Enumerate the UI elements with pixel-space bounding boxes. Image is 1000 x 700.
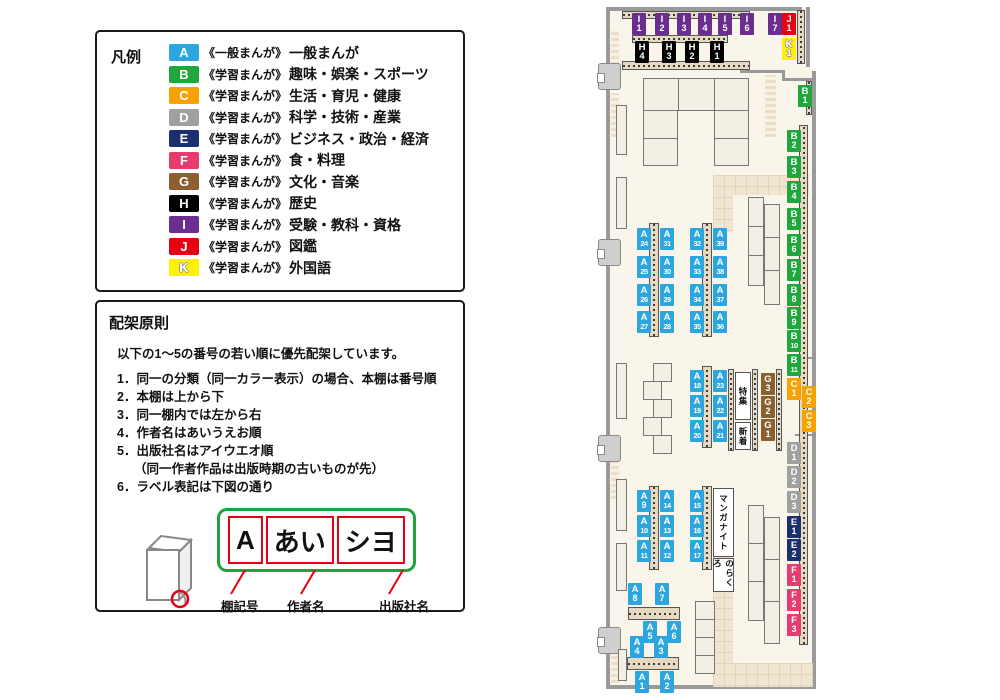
wall-shelf — [616, 105, 627, 155]
shelf-label-B7: B7 — [787, 259, 801, 281]
shelf-block — [764, 517, 780, 560]
shelf-label-A39: A39 — [713, 228, 727, 250]
shelf-label-A28: A28 — [660, 311, 674, 333]
legend-series: 《学習まんが》 — [203, 195, 287, 212]
category-chip-I: I — [169, 216, 199, 233]
category-chip-F: F — [169, 152, 199, 169]
door-icon — [598, 63, 621, 90]
legend-series: 《一般まんが》 — [203, 44, 287, 61]
legend-row-J: J《学習まんが》図鑑 — [169, 236, 451, 258]
shelf-label-B9: B9 — [787, 307, 801, 329]
rules-item-4: 4．作者名はあいうえお順 — [117, 424, 451, 442]
shelf-label-A27: A27 — [637, 311, 651, 333]
shelf-label-B5: B5 — [787, 208, 801, 230]
shelf-strip — [627, 657, 679, 670]
diagram-caption-3: 出版社名 — [379, 596, 429, 615]
rules-box: 配架原則 以下の1〜5の番号の若い順に優先配架しています。 1．同一の分類（同一… — [95, 300, 465, 612]
shelf-label-J1: J1 — [782, 13, 796, 35]
shelf-label-A17: A17 — [690, 540, 704, 562]
shelf-block — [748, 226, 764, 256]
shelf-label-A35: A35 — [690, 311, 704, 333]
table — [695, 637, 715, 656]
legend-series: 《学習まんが》 — [203, 238, 287, 255]
legend-name: 一般まんが — [289, 43, 359, 63]
shelf-label-A29: A29 — [660, 284, 674, 306]
shelf-block — [764, 601, 780, 644]
shelf-strip — [752, 369, 758, 451]
shelf-block — [748, 505, 764, 544]
shelf-label-B4: B4 — [787, 181, 801, 203]
shelf-block — [643, 110, 678, 139]
category-chip-D: D — [169, 109, 199, 126]
legend-name: 食・料理 — [289, 150, 345, 170]
legend-name: 外国語 — [289, 258, 331, 278]
shelf-label-A33: A33 — [690, 256, 704, 278]
shelf-strip — [797, 10, 805, 64]
book-icon — [139, 530, 201, 614]
shelf-label-B11: B11 — [787, 354, 801, 376]
legend-series: 《学習まんが》 — [203, 66, 287, 83]
rules-item-2: 2．本棚は上から下 — [117, 388, 451, 406]
shelf-label-E2: E2 — [787, 539, 801, 561]
shelf-block — [714, 78, 749, 111]
diagram-caption-2: 作者名 — [287, 596, 325, 615]
table — [695, 655, 715, 674]
shelf-label-F1: F1 — [787, 564, 801, 586]
map-text-マンガナイト: マンガナイト — [713, 488, 734, 557]
shelf-label-A8: A8 — [628, 583, 642, 605]
legend-series: 《学習まんが》 — [203, 109, 287, 126]
shelf-block — [678, 78, 715, 111]
legend-row-A: A《一般まんが》一般まんが — [169, 42, 451, 64]
shelf-label-A30: A30 — [660, 256, 674, 278]
wall-seg — [740, 70, 784, 73]
shelf-label-I4: I4 — [698, 13, 712, 35]
shelf-label-A31: A31 — [660, 228, 674, 250]
label-cell-1: A — [228, 516, 263, 564]
shelf-label-B10: B10 — [787, 330, 801, 352]
label-cell-3: シヨ — [337, 516, 405, 564]
shelf-label-K1: K1 — [782, 38, 796, 60]
shelf-label-A20: A20 — [690, 420, 704, 442]
rules-item-3: 3．同一棚内では左から右 — [117, 406, 451, 424]
shelf-label-G1: G1 — [761, 419, 775, 441]
shelf-label-H1: H1 — [710, 41, 724, 63]
table — [653, 363, 672, 382]
shelf-label-A22: A22 — [713, 395, 727, 417]
wall-shelf — [616, 363, 627, 419]
shelf-label-A14: A14 — [660, 490, 674, 512]
legend-row-H: H《学習まんが》歴史 — [169, 193, 451, 215]
shelf-label-A24: A24 — [637, 228, 651, 250]
diagram-caption-1: 棚記号 — [221, 596, 259, 615]
legend-row-F: F《学習まんが》食・料理 — [169, 150, 451, 172]
shelf-label-A38: A38 — [713, 256, 727, 278]
shelf-label-H2: H2 — [685, 41, 699, 63]
shelf-label-E1: E1 — [787, 516, 801, 538]
shelf-block — [748, 543, 764, 582]
shelf-block — [714, 138, 749, 166]
legend-name: 文化・音楽 — [289, 172, 359, 192]
legend-name: 歴史 — [289, 193, 317, 213]
shelf-label-A36: A36 — [713, 311, 727, 333]
shelf-label-B8: B8 — [787, 284, 801, 306]
rules-item-note: （同一作者作品は出版時期の古いものが先） — [134, 460, 451, 478]
category-chip-H: H — [169, 195, 199, 212]
rules-title: 配架原則 — [109, 312, 451, 333]
shelf-label-A16: A16 — [690, 515, 704, 537]
table — [643, 381, 662, 400]
wall-shelf — [616, 479, 627, 531]
legend-row-B: B《学習まんが》趣味・娯楽・スポーツ — [169, 64, 451, 86]
legend-name: ビジネス・政治・経済 — [289, 129, 429, 149]
table — [695, 601, 715, 620]
shelf-label-A23: A23 — [713, 370, 727, 392]
shelf-block — [714, 110, 749, 139]
legend-series: 《学習まんが》 — [203, 87, 287, 104]
legend-row-K: K《学習まんが》外国語 — [169, 257, 451, 279]
legend-row-C: C《学習まんが》生活・育児・健康 — [169, 85, 451, 107]
legend-series: 《学習まんが》 — [203, 259, 287, 276]
category-chip-A: A — [169, 44, 199, 61]
shelf-label-I3: I3 — [677, 13, 691, 35]
shelf-label-F3: F3 — [787, 614, 801, 636]
shelf-label-C2: C2 — [802, 386, 816, 408]
shelf-label-A34: A34 — [690, 284, 704, 306]
shelf-block — [764, 237, 780, 271]
shelf-label-A7: A7 — [655, 583, 669, 605]
label-frame: Aあいシヨ — [217, 508, 416, 572]
tile-path — [713, 175, 733, 232]
shelf-block — [643, 138, 678, 166]
shelf-label-B3: B3 — [787, 156, 801, 178]
legend-row-I: I《学習まんが》受験・教科・資格 — [169, 214, 451, 236]
shelf-label-B6: B6 — [787, 234, 801, 256]
shelf-label-A13: A13 — [660, 515, 674, 537]
shelf-label-A3: A3 — [654, 636, 668, 658]
wall-right — [812, 71, 816, 689]
shelf-label-I7: I7 — [768, 13, 782, 35]
shelf-label-I1: I1 — [632, 13, 646, 35]
floor-map: I1I2I3I4I5I6I7J1K1H4H3H2H1B1B2B3B4B5B6B7… — [598, 5, 820, 695]
shelf-label-A21: A21 — [713, 420, 727, 442]
wall-shelf — [616, 177, 627, 229]
shelf-label-A32: A32 — [690, 228, 704, 250]
door-icon — [598, 239, 621, 266]
category-chip-J: J — [169, 238, 199, 255]
map-text-のらくろ: のらくろ — [713, 558, 734, 592]
mask — [810, 5, 820, 69]
legend-name: 趣味・娯楽・スポーツ — [289, 64, 429, 84]
table — [653, 435, 672, 454]
shelf-label-I5: I5 — [718, 13, 732, 35]
shelf-label-B2: B2 — [787, 130, 801, 152]
shelf-block — [643, 78, 679, 111]
legend-row-D: D《学習まんが》科学・技術・産業 — [169, 107, 451, 129]
shelf-label-D2: D2 — [787, 466, 801, 488]
rules-item-1: 1．同一の分類（同一カラー表示）の場合、本棚は番号順 — [117, 370, 451, 388]
shelf-label-B1: B1 — [798, 85, 812, 107]
legend-name: 図鑑 — [289, 236, 317, 256]
legend-items: A《一般まんが》一般まんがB《学習まんが》趣味・娯楽・スポーツC《学習まんが》生… — [169, 42, 451, 279]
map-text-特集: 特集 — [735, 372, 751, 420]
leader-lines — [217, 570, 467, 596]
rules-item-6: 6．ラベル表記は下図の通り — [117, 478, 451, 496]
category-chip-G: G — [169, 173, 199, 190]
wall-topright-stub — [806, 7, 810, 67]
shelf-block — [748, 581, 764, 621]
page: 凡例 A《一般まんが》一般まんがB《学習まんが》趣味・娯楽・スポーツC《学習まん… — [0, 0, 1000, 700]
shelf-label-D3: D3 — [787, 491, 801, 513]
table — [643, 417, 662, 436]
shelf-label-A15: A15 — [690, 490, 704, 512]
hatch-strip — [765, 75, 776, 137]
tile-path — [713, 663, 813, 687]
door-icon — [598, 435, 621, 462]
legend-name: 科学・技術・産業 — [289, 107, 401, 127]
legend-name: 生活・育児・健康 — [289, 86, 401, 106]
shelf-label-F2: F2 — [787, 589, 801, 611]
shelf-block — [748, 197, 764, 227]
shelf-block — [764, 270, 780, 305]
shelf-strip — [728, 369, 734, 451]
rules-item-5: 5．出版社名はアイウエオ順 — [117, 442, 451, 460]
shelf-strip — [776, 369, 782, 451]
shelf-label-H3: H3 — [662, 41, 676, 63]
table — [653, 399, 672, 418]
category-chip-C: C — [169, 87, 199, 104]
legend-series: 《学習まんが》 — [203, 152, 287, 169]
legend-row-E: E《学習まんが》ビジネス・政治・経済 — [169, 128, 451, 150]
shelf-label-C1: C1 — [787, 378, 801, 400]
shelf-label-H4: H4 — [635, 41, 649, 63]
shelf-label-A9: A9 — [637, 490, 651, 512]
wall-shelf — [616, 543, 627, 591]
shelf-label-A37: A37 — [713, 284, 727, 306]
shelf-label-A10: A10 — [637, 515, 651, 537]
shelf-label-I6: I6 — [740, 13, 754, 35]
rules-intro: 以下の1〜5の番号の若い順に優先配架しています。 — [117, 343, 451, 362]
legend-row-G: G《学習まんが》文化・音楽 — [169, 171, 451, 193]
shelf-label-A2: A2 — [660, 671, 674, 693]
shelf-label-A1: A1 — [635, 671, 649, 693]
rules-list: 1．同一の分類（同一カラー表示）の場合、本棚は番号順2．本棚は上から下3．同一棚… — [117, 370, 451, 496]
shelf-label-G2: G2 — [761, 396, 775, 418]
legend-series: 《学習まんが》 — [203, 130, 287, 147]
label-cell-2: あい — [266, 516, 334, 564]
shelf-label-G3: G3 — [761, 373, 775, 395]
legend-series: 《学習まんが》 — [203, 216, 287, 233]
shelf-label-A26: A26 — [637, 284, 651, 306]
category-chip-E: E — [169, 130, 199, 147]
shelf-label-A12: A12 — [660, 540, 674, 562]
legend-box: 凡例 A《一般まんが》一般まんがB《学習まんが》趣味・娯楽・スポーツC《学習まん… — [95, 30, 465, 292]
shelf-label-A11: A11 — [637, 540, 651, 562]
shelf-strip — [628, 607, 680, 620]
shelf-block — [764, 559, 780, 602]
shelf-label-A18: A18 — [690, 370, 704, 392]
legend-title: 凡例 — [111, 46, 141, 67]
shelf-block — [764, 204, 780, 238]
table — [695, 619, 715, 638]
shelf-label-I2: I2 — [655, 13, 669, 35]
legend-series: 《学習まんが》 — [203, 173, 287, 190]
category-chip-B: B — [169, 66, 199, 83]
wall-shelf — [618, 649, 627, 681]
shelf-label-A25: A25 — [637, 256, 651, 278]
label-spec-diagram: Aあいシヨ 棚記号作者名出版社名 — [109, 500, 451, 632]
shelf-label-A6: A6 — [667, 621, 681, 643]
shelf-label-A19: A19 — [690, 395, 704, 417]
shelf-block — [748, 255, 764, 286]
category-chip-K: K — [169, 259, 199, 276]
shelf-label-D1: D1 — [787, 442, 801, 464]
shelf-label-C3: C3 — [802, 410, 816, 432]
wall-left — [606, 7, 610, 689]
legend-name: 受験・教科・資格 — [289, 215, 401, 235]
map-text-新着: 新着 — [735, 422, 751, 450]
shelf-label-A4: A4 — [630, 636, 644, 658]
hatch-strip — [611, 29, 619, 65]
